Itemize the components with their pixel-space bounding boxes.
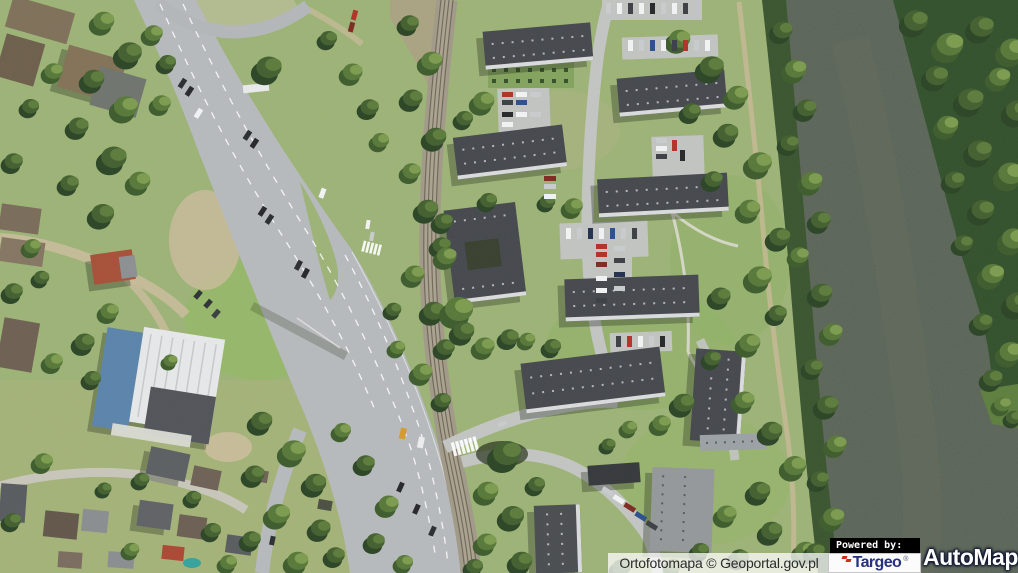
aerial-imagery [0, 0, 1018, 573]
map-attribution: Ortofotomapa © Geoportal.gov.pl [608, 553, 830, 573]
map-canvas[interactable]: Ortofotomapa © Geoportal.gov.pl Powered … [0, 0, 1018, 573]
targeo-logo[interactable]: Targeo ® [828, 553, 921, 573]
automapa-logo[interactable]: AutoMapa® [923, 544, 1018, 571]
photo-grain [0, 0, 1018, 573]
targeo-registered-mark: ® [903, 556, 908, 563]
powered-by-label: Powered by: [830, 538, 920, 553]
targeo-logo-text: Targeo [853, 554, 902, 572]
targeo-mark-icon [842, 556, 852, 564]
automapa-logo-text: AutoMapa [923, 544, 1018, 570]
